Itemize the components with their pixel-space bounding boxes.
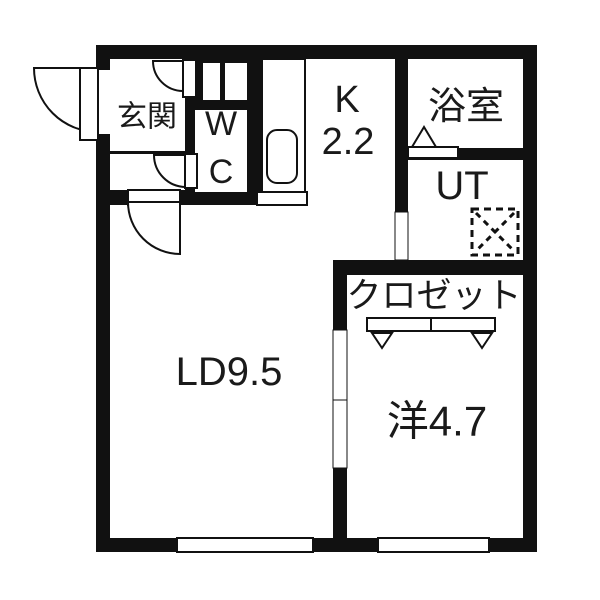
label-western-room: 洋4.7 [387,398,487,445]
label-kitchen: K [334,79,359,121]
label-living-dining: LD9.5 [176,350,283,394]
pipe-space-niche-1 [203,63,220,100]
label-wc-line1: W [205,105,237,143]
genkan-door-leaf [185,154,197,188]
kitchen-sink-icon [267,130,297,183]
floorplan-drawing: 玄関 W C K 2.2 浴室 UT クロゼット LD9.5 洋4.7 [0,0,600,600]
label-utility: UT [435,164,488,208]
label-genkan: 玄関 [117,101,177,134]
kitchen-utility-opening [395,212,408,260]
label-closet: クロゼット [346,277,521,316]
wc-door-leaf [183,60,196,97]
ld-window-icon [177,538,313,552]
ld-western-sliding-door-upper [333,330,347,400]
closet-door-panel-left [367,318,431,331]
ld-western-sliding-door-lower [333,400,347,468]
label-kitchen-area: 2.2 [322,121,375,163]
closet-door-panel-right [431,318,495,331]
kitchen-counter-step [257,192,307,205]
pipe-space-niche-2 [225,63,247,100]
label-bath: 浴室 [428,86,504,128]
bath-door-gap [408,147,458,158]
label-wc-line2: C [209,153,234,191]
floorplan: 玄関 W C K 2.2 浴室 UT クロゼット LD9.5 洋4.7 [0,0,600,600]
western-window-icon [378,538,489,552]
entrance-door-leaf [80,68,98,140]
